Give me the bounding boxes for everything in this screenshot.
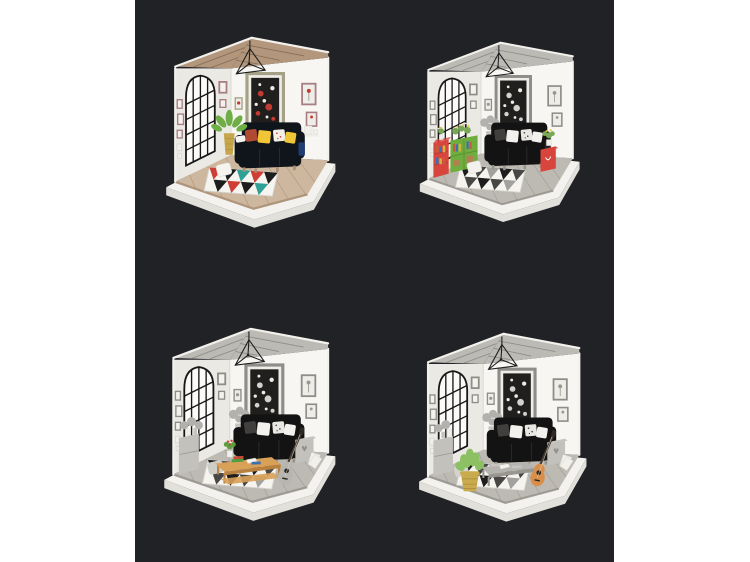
pillow <box>245 129 258 142</box>
diorama-2-scene <box>413 20 583 232</box>
storage-box <box>454 160 460 166</box>
pillow <box>506 130 519 143</box>
pillow <box>497 424 510 437</box>
diorama-1-scene <box>159 14 339 238</box>
diorama-3-scene <box>157 306 339 530</box>
triangle-rug <box>204 167 278 196</box>
diorama-4-scene <box>412 314 590 528</box>
pillow <box>257 130 271 144</box>
diorama-photo-top-right <box>413 20 583 232</box>
pillow <box>244 421 257 434</box>
pillow <box>273 129 286 142</box>
pillow <box>521 129 533 141</box>
red-cabinet <box>433 137 451 178</box>
pillow <box>531 131 543 143</box>
dark-backdrop <box>135 0 614 562</box>
diorama-photo-bottom-left <box>157 306 339 530</box>
diorama-photo-top-left <box>159 14 339 238</box>
pillow <box>256 422 270 436</box>
arched-window <box>186 76 215 166</box>
photo-collage-page <box>0 0 750 562</box>
pillow <box>272 421 285 434</box>
pillow <box>536 426 548 438</box>
diorama-photo-bottom-right <box>412 314 590 528</box>
pillow <box>509 425 523 439</box>
sofa <box>487 417 556 467</box>
pillow <box>494 129 506 141</box>
pillow <box>284 132 296 144</box>
pillow <box>284 424 296 436</box>
pillow <box>525 424 538 437</box>
sofa <box>235 122 305 172</box>
storage-box <box>467 156 474 163</box>
